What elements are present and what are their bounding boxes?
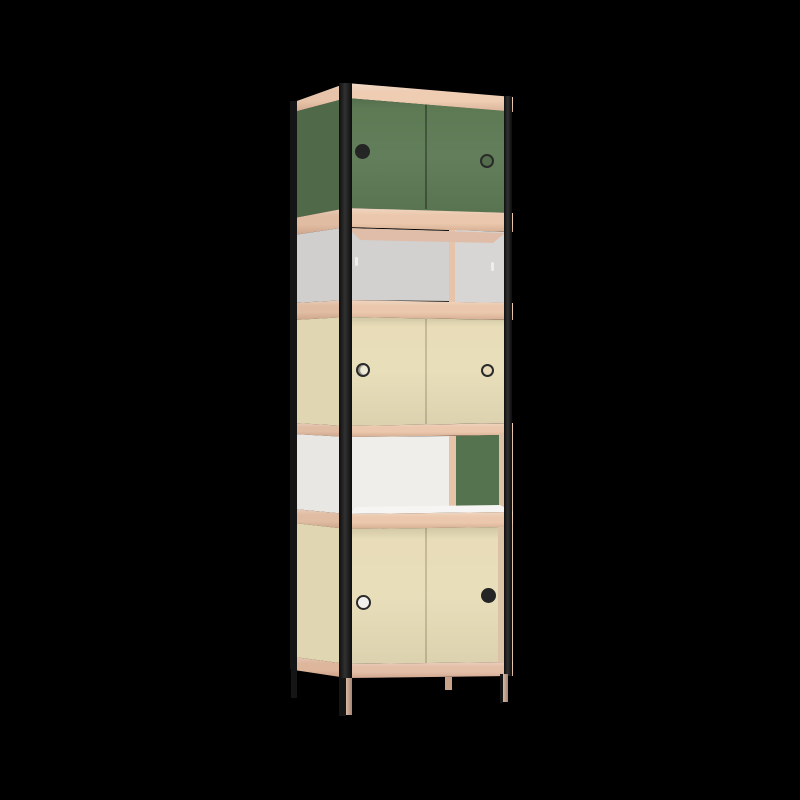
- front-shelf-edge-5: [346, 512, 513, 529]
- shelving-unit: [0, 0, 800, 800]
- product-render-stage: [0, 0, 800, 800]
- tier1-left-finger-hole: [355, 144, 370, 159]
- tier3-sliding-doors-beige: [346, 317, 506, 426]
- front-shelf-edge-base: [346, 662, 513, 678]
- tier2-right-door-notch: [491, 262, 494, 271]
- tier5-door-seam: [425, 528, 427, 663]
- tier1-right-finger-hole: [480, 154, 494, 168]
- tier4-back-panel-white: [346, 436, 451, 510]
- tier4-green-sliding-panel: [456, 435, 500, 511]
- leg-back-left: [291, 669, 297, 698]
- tier5-right-finger-hole: [481, 588, 496, 603]
- leg-front-left-wood: [346, 678, 352, 715]
- tier5-sliding-doors-beige: [346, 527, 506, 664]
- tier3-right-finger-hole: [481, 364, 494, 377]
- leg-back-right-stub: [445, 677, 452, 690]
- leg-front-left-black: [339, 678, 346, 716]
- front-shelf-edge-3: [346, 300, 513, 320]
- leg-front-right-wood: [503, 674, 508, 702]
- tier4-panel-edge-plywood: [449, 436, 457, 510]
- tier1-door-seam: [425, 104, 427, 209]
- tier1-sliding-doors-green: [346, 98, 506, 213]
- tier2-left-door-notch: [355, 257, 358, 266]
- frame-post-front-left: [339, 83, 352, 678]
- tier3-door-seam: [425, 319, 427, 424]
- tier3-left-finger-hole: [356, 363, 370, 377]
- frame-post-back-left: [290, 101, 297, 669]
- tier5-left-finger-hole: [356, 595, 371, 610]
- frame-post-front-right: [504, 96, 512, 676]
